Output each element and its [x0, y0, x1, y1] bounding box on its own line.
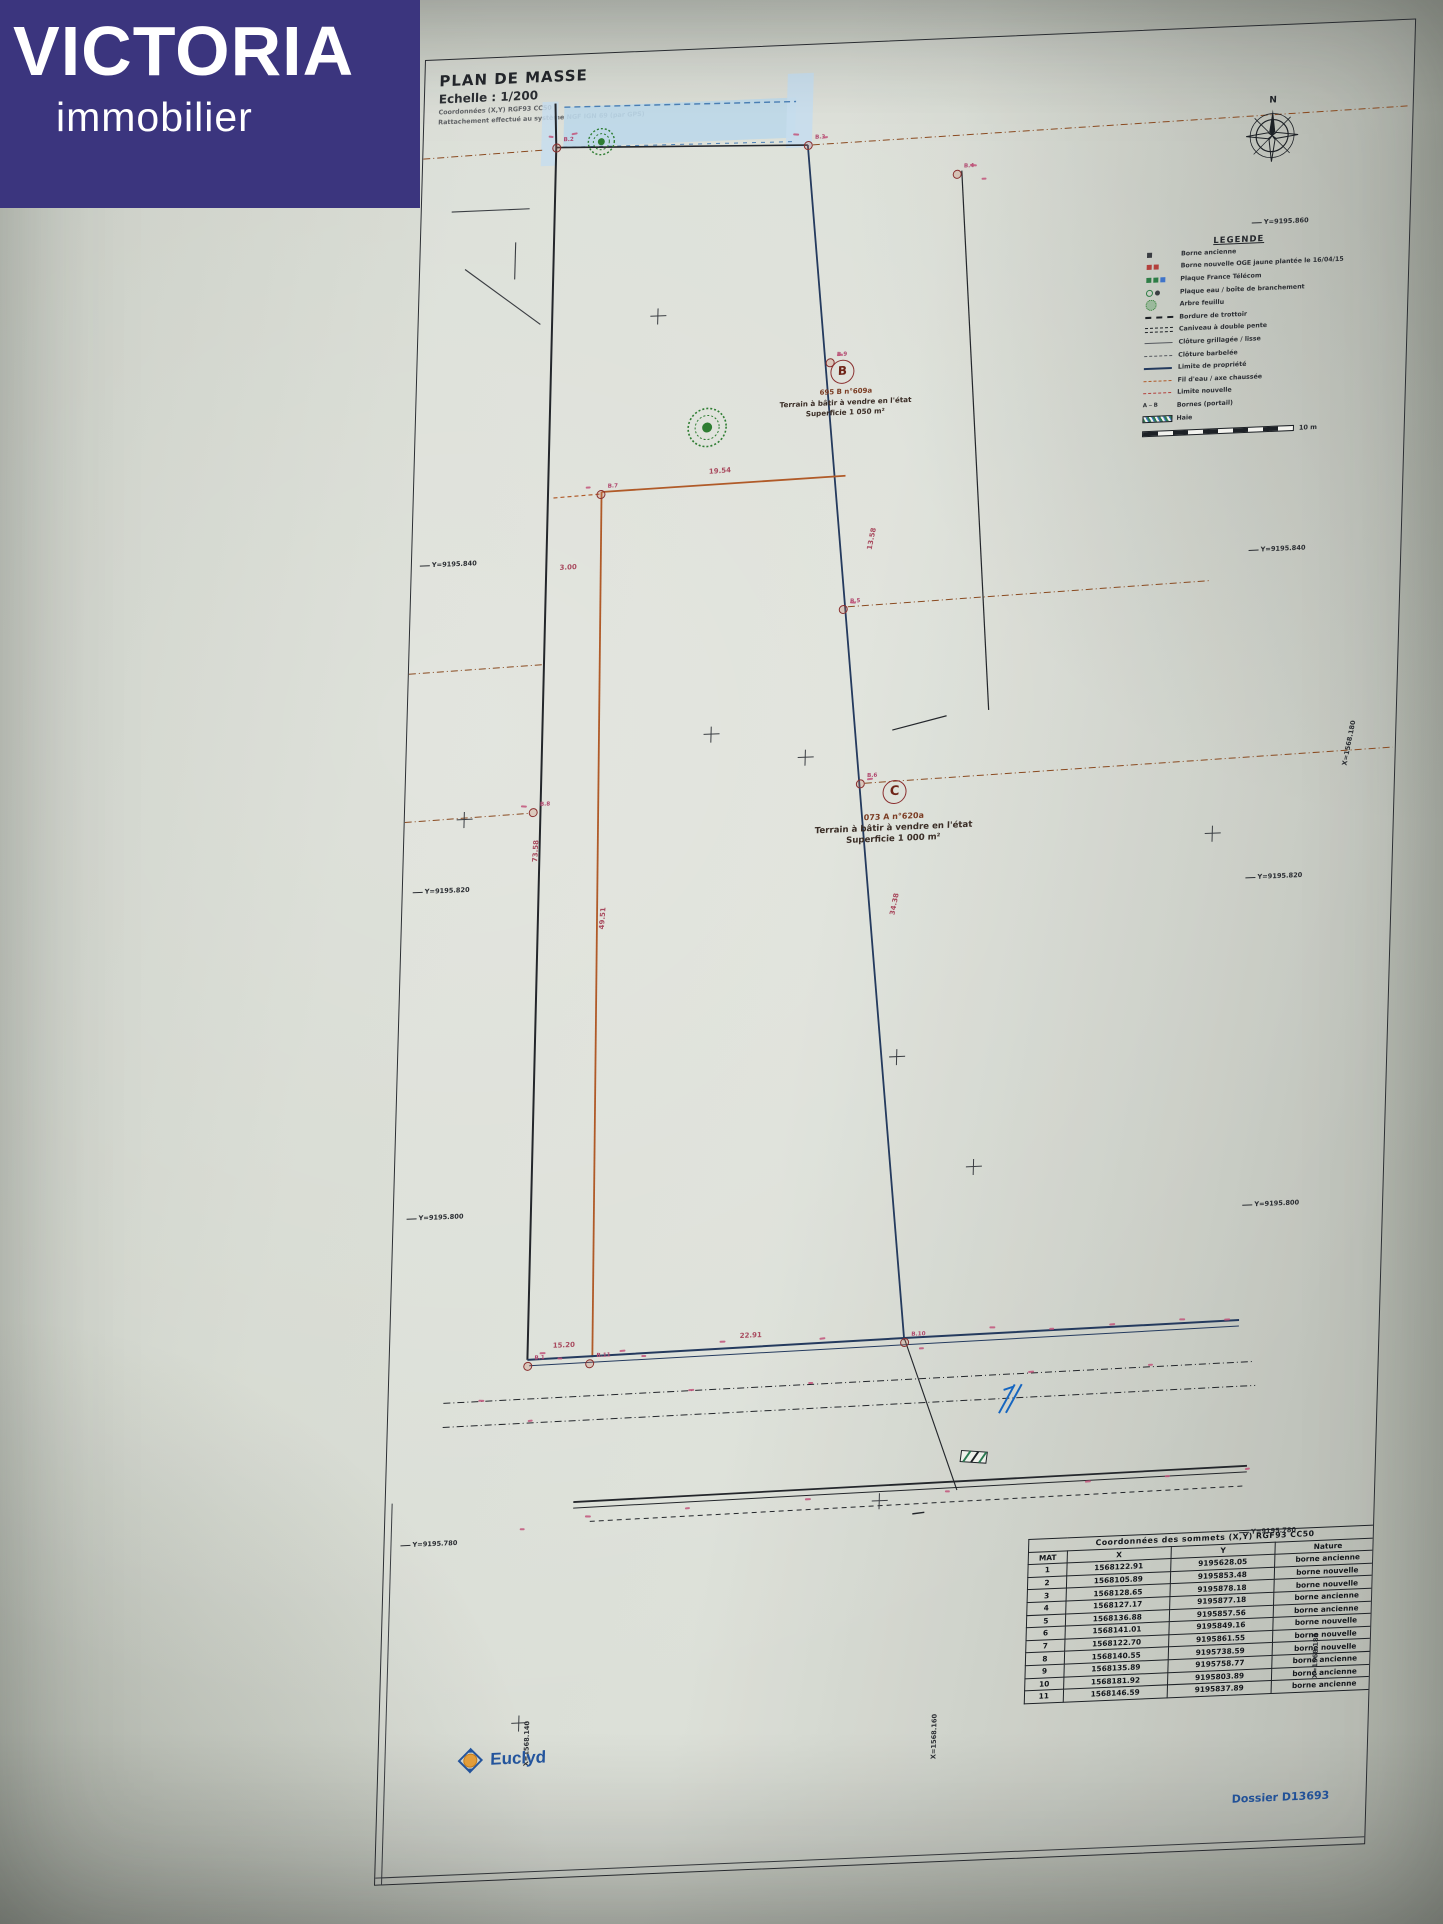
legend-panel: LEGENDE Borne ancienneBorne nouvelle OGE…	[1142, 230, 1361, 439]
hatch-symbol	[1142, 415, 1172, 423]
survey-point-label: B.11	[596, 1352, 610, 1359]
micro-annotation	[719, 1341, 725, 1343]
graticule-cross-icon	[889, 1049, 905, 1066]
legend-item-label: Plaque France Télécom	[1180, 272, 1261, 282]
thin-symbol	[1145, 342, 1173, 344]
compass-icon	[1239, 104, 1305, 167]
sqr-symbol	[1147, 265, 1152, 270]
micro-annotation	[641, 1355, 646, 1357]
legend-item-label: Limite nouvelle	[1177, 387, 1232, 396]
ab-legend-icon: A ⎯ B	[1143, 402, 1177, 410]
micro-annotation	[585, 1515, 591, 1517]
sqb-symbol	[1147, 253, 1152, 258]
legend-items: Borne ancienneBorne nouvelle OGE jaune p…	[1142, 240, 1361, 426]
sqg-legend-icon	[1146, 277, 1180, 283]
dashb-symbol	[1145, 316, 1173, 319]
orng-legend-icon	[1144, 380, 1178, 382]
thin2-legend-icon	[1144, 354, 1178, 356]
dimension-label: 3.00	[559, 563, 576, 572]
grid-tick	[413, 891, 423, 892]
site-plan-sheet: PLAN DE MASSE Echelle : 1/200 Coordonnée…	[374, 18, 1416, 1885]
grid-tick	[1249, 549, 1259, 550]
micro-annotation	[919, 1347, 924, 1349]
graticule-cross-icon	[650, 308, 666, 325]
sqb-legend-icon	[1147, 251, 1181, 257]
legend-item-label: Arbre feuillu	[1180, 299, 1225, 308]
legend-item-label: Haie	[1176, 414, 1192, 422]
coordinates-table: Coordonnées des sommets (X,Y) RGF93 CC50…	[1024, 1524, 1382, 1704]
dash2-symbol	[1145, 327, 1173, 333]
legend-item-label: Bornes (portail)	[1177, 399, 1233, 408]
graticule-cross-icon	[1205, 825, 1221, 842]
micro-annotation	[586, 486, 591, 488]
dimension-label: 15.20	[553, 1341, 575, 1350]
graticule-cross-icon	[456, 812, 472, 829]
dash2-legend-icon	[1145, 327, 1179, 333]
legend-item-label: Clôture grillagée / lisse	[1178, 335, 1260, 345]
micro-annotation	[688, 1389, 694, 1391]
grid-tick	[400, 1544, 410, 1545]
grid-tick	[407, 1218, 417, 1219]
far-east-line	[947, 169, 1004, 712]
tree-symbol	[1145, 300, 1156, 311]
cg-symbol	[1146, 289, 1153, 296]
micro-annotation	[520, 1528, 525, 1530]
grid-tick	[420, 565, 430, 566]
graticule-cross-icon	[797, 749, 813, 766]
micro-annotation	[805, 1498, 811, 1500]
division-line-west	[577, 491, 616, 1357]
dimension-label: 22.91	[740, 1331, 762, 1340]
graticule-cross-icon	[872, 1493, 888, 1510]
thin2-symbol	[1144, 355, 1172, 357]
micro-annotation	[540, 1352, 546, 1354]
thin-legend-icon	[1145, 342, 1179, 344]
water-strip-end	[786, 73, 814, 148]
legend-item-label: Caniveau à double pente	[1179, 322, 1267, 333]
micro-annotation	[793, 133, 799, 135]
hatched-gate-icon	[960, 1451, 987, 1464]
tree-symbol-2	[688, 408, 727, 448]
legend-item-label: Borne ancienne	[1181, 248, 1236, 257]
micro-annotation	[850, 601, 856, 603]
micro-annotation	[989, 1326, 995, 1328]
graticule-cross-icon	[511, 1715, 527, 1732]
micro-annotation	[1049, 1328, 1054, 1330]
cg-legend-icon	[1146, 288, 1180, 296]
division-line-top	[602, 476, 846, 492]
legend-item-label: Clôture barbelée	[1178, 349, 1238, 359]
micro-annotation	[478, 1400, 484, 1402]
grid-x-label: X=1568.160	[929, 1714, 938, 1760]
photographed-survey-document: VICTORIA immobilier PLAN DE MASSE Echell…	[0, 0, 1443, 1924]
sqg-symbol	[1146, 278, 1151, 283]
survey-point-label: B.1	[534, 1355, 544, 1361]
tick-mark	[912, 1512, 924, 1514]
agency-brand-name: VICTORIA	[13, 16, 420, 86]
micro-annotation	[982, 178, 987, 180]
graticule-cross-icon	[966, 1159, 982, 1176]
micro-annotation	[808, 1382, 813, 1384]
survey-point-label: B.10	[911, 1331, 925, 1338]
tree-legend-icon	[1145, 299, 1179, 311]
graticule-cross-icon	[703, 726, 719, 743]
micro-annotation	[521, 805, 527, 807]
scale-bar-label: 10 m	[1299, 423, 1317, 432]
legend-item-label: Fil d'eau / axe chaussée	[1177, 373, 1262, 384]
sqr-legend-icon	[1147, 264, 1181, 270]
dimension-label: 73.58	[531, 840, 540, 862]
legend-item-label: Limite de propriété	[1178, 361, 1247, 371]
surveyor-logo: Euclyd	[456, 1743, 546, 1775]
legend-item-label: Bordure de trottoir	[1179, 311, 1247, 321]
road-lines	[440, 1319, 1257, 1527]
east-boundary-line	[774, 140, 937, 1346]
survey-point-label: B.8	[540, 801, 550, 807]
grid-tick	[1245, 876, 1255, 877]
micro-annotation	[945, 1490, 950, 1492]
micro-annotation	[1224, 1318, 1230, 1320]
red-legend-icon	[1143, 392, 1177, 394]
dashb-legend-icon	[1145, 316, 1179, 319]
agency-brand-subtitle: immobilier	[56, 94, 420, 141]
micro-annotation	[1179, 1318, 1185, 1320]
dimension-label: 19.54	[709, 466, 731, 476]
micro-annotation	[1165, 1475, 1170, 1477]
red-symbol	[1143, 392, 1171, 394]
blue-symbol	[1144, 367, 1172, 370]
grid-tick	[1252, 222, 1262, 223]
surveyor-name: Euclyd	[490, 1747, 546, 1769]
survey-point-label: B.7	[608, 483, 618, 489]
hatch-legend-icon	[1142, 414, 1176, 422]
blue-legend-icon	[1144, 366, 1178, 369]
west-boundary-line	[520, 103, 562, 1360]
table-cell: 11	[1024, 1689, 1063, 1703]
micro-annotation	[557, 1357, 562, 1359]
north-compass: N	[1239, 94, 1305, 171]
agency-logo: VICTORIA immobilier	[0, 0, 420, 208]
micro-annotation	[1148, 1364, 1153, 1366]
adjacent-structure-lines	[448, 208, 543, 328]
grid-tick	[1242, 1204, 1252, 1205]
orng-symbol	[1144, 380, 1172, 382]
surveyor-compass-icon	[456, 1746, 485, 1775]
survey-point-label: B.2	[563, 137, 573, 143]
gate-symbol: A ⎯ B	[1143, 403, 1158, 411]
